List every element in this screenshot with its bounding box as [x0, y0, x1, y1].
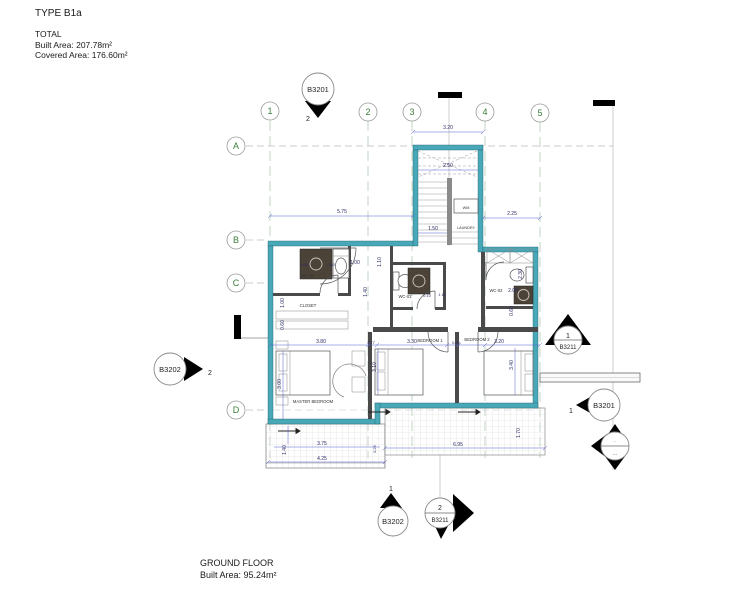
master-dresser — [352, 351, 365, 366]
room-label-bed2: BEDROOM 2 — [464, 337, 490, 342]
marker-east-elev-b3211: 1 B3211 — [545, 314, 591, 354]
dim-balcony-a: 3.75 — [317, 441, 327, 447]
plan-drawing: 1 2 3 4 5 A B C D — [0, 0, 750, 600]
grid-col-label-2: 2 — [365, 107, 370, 117]
grid-col-label-3: 3 — [409, 107, 414, 117]
total-area-block: TOTAL Built Area: 207.78m² Covered Area:… — [35, 29, 128, 61]
room-label-bed1: BEDROOM 1 — [417, 338, 443, 343]
dim-left-top: 5.75 — [337, 209, 347, 215]
dim-wc03-b: 1.11 — [438, 292, 446, 297]
dim-stair-bottom: 1.50 — [428, 226, 438, 232]
section-bar-west — [234, 315, 241, 339]
dim-balcony-h: 1.40 — [282, 445, 288, 455]
furniture — [276, 341, 533, 405]
bathroom-fixtures — [300, 249, 533, 304]
closet-shelf — [276, 321, 348, 329]
total-built-area: Built Area: 207.78m² — [35, 40, 128, 51]
closet-shelf — [276, 311, 348, 319]
master-dresser — [352, 377, 365, 392]
dim-hall-w: 1.00 — [350, 260, 360, 266]
dim-tower-top: 3.20 — [443, 125, 453, 131]
dim-bed2-w: 3.20 — [494, 339, 504, 345]
washing-machine-label: WM — [463, 206, 470, 210]
bedroom2-bed — [484, 351, 533, 395]
dim-stair-width: 2.50 — [443, 163, 453, 169]
grid-row-label-d: D — [233, 405, 240, 415]
dim-bed1-h: 3.10 — [372, 362, 378, 372]
room-label-closet: CLOSET — [300, 303, 317, 308]
dim-wc02-b: 0.60 — [509, 306, 515, 316]
marker-east-elev-label: B3211 — [560, 345, 578, 351]
dim-closet-b: 0.60 — [280, 320, 286, 330]
dim-right-top: 2.25 — [507, 211, 517, 217]
dim-wc04-b: 0.60 — [327, 262, 336, 267]
marker-east-elev-num: 1 — [566, 333, 570, 340]
marker-top-b3201: B3201 2 — [302, 73, 334, 123]
section-bar-top-center — [438, 92, 462, 98]
marker-south-elev-label: B3211 — [432, 518, 450, 524]
room-label-wc04: WC-04 — [301, 273, 315, 278]
dim-hall-h: 1.10 — [377, 257, 383, 267]
sheet-type-title: TYPE B1a — [35, 8, 82, 19]
dim-terrace-w: 6.95 — [453, 442, 463, 448]
marker-top-label: B3201 — [307, 85, 329, 94]
grid-col-label-1: 1 — [267, 106, 272, 116]
dim-wc02-h: 2.30 — [518, 269, 524, 279]
marker-west-b3202: B3202 2 — [154, 353, 212, 385]
marker-south-sec-num: 1 — [389, 486, 393, 493]
bedroom1-bed — [375, 349, 423, 395]
marker-south-sec-b3202: 1 B3202 — [378, 486, 408, 536]
dim-wc03-h: 1.40 — [363, 287, 369, 297]
dim-balcony-c: 0.25 — [372, 444, 377, 453]
dim-master-w: 3.80 — [316, 339, 326, 345]
dim-wc02-w: 2.00 — [508, 288, 518, 294]
marker-west-label: B3202 — [159, 365, 181, 374]
master-bed — [276, 341, 330, 405]
marker-compass: · ··· — [591, 424, 629, 470]
marker-west-num: 2 — [208, 370, 212, 377]
marker-east-sec-label: B3201 — [593, 401, 615, 410]
grid-row-label-c: C — [233, 278, 240, 288]
wc04-toilet — [333, 249, 349, 278]
dim-bed1-w: 3.30 — [407, 339, 417, 345]
dim-balcony-b: 4.25 — [317, 456, 327, 462]
floor-name: GROUND FLOOR — [200, 558, 277, 570]
room-label-wc02: WC-02 — [489, 288, 503, 293]
wc03-shower — [408, 268, 430, 294]
floor-built-area: Built Area: 95.24m² — [200, 570, 277, 582]
marker-compass-bottom: ··· — [613, 452, 618, 458]
total-label: TOTAL — [35, 29, 128, 40]
dim-wc04-a: 0.90 — [300, 262, 309, 267]
total-covered-area: Covered Area: 176.60m² — [35, 50, 128, 61]
grid-col-label-4: 4 — [482, 107, 487, 117]
marker-east-sec-num: 1 — [569, 408, 573, 415]
dim-terrace-h: 1.70 — [516, 428, 522, 438]
grid-row-label-b: B — [233, 235, 239, 245]
section-bar-top-right — [593, 100, 615, 106]
dim-wc03-a: 0.10 — [423, 293, 432, 298]
dim-bed2-h: 3.40 — [509, 360, 515, 370]
stair-rail — [447, 178, 452, 245]
room-label-laundry: LAUNDRY — [457, 226, 476, 230]
dim-closet-a: 1.00 — [280, 298, 286, 308]
marker-east-sec-b3201: B3201 1 — [569, 389, 620, 421]
grid-row-label-a: A — [233, 141, 239, 151]
marker-top-num: 2 — [306, 116, 310, 123]
marker-south-elev-num: 2 — [438, 505, 442, 512]
floor-title-block: GROUND FLOOR Built Area: 95.24m² — [200, 558, 277, 581]
room-label-wc03: WC-03 — [398, 294, 412, 299]
grid-col-label-5: 5 — [537, 108, 542, 118]
dim-gap1: 0.77 — [367, 340, 376, 345]
room-label-master: MASTER BEDROOM — [293, 399, 334, 404]
marker-south-elev-b3211: 2 B3211 — [425, 494, 474, 539]
dim-master-h: 3.00 — [277, 379, 283, 389]
dim-gap2: 0.80 — [452, 340, 461, 345]
marker-south-sec-label: B3202 — [382, 517, 404, 526]
floor-plan-sheet: TYPE B1a TOTAL Built Area: 207.78m² Cove… — [0, 0, 750, 600]
